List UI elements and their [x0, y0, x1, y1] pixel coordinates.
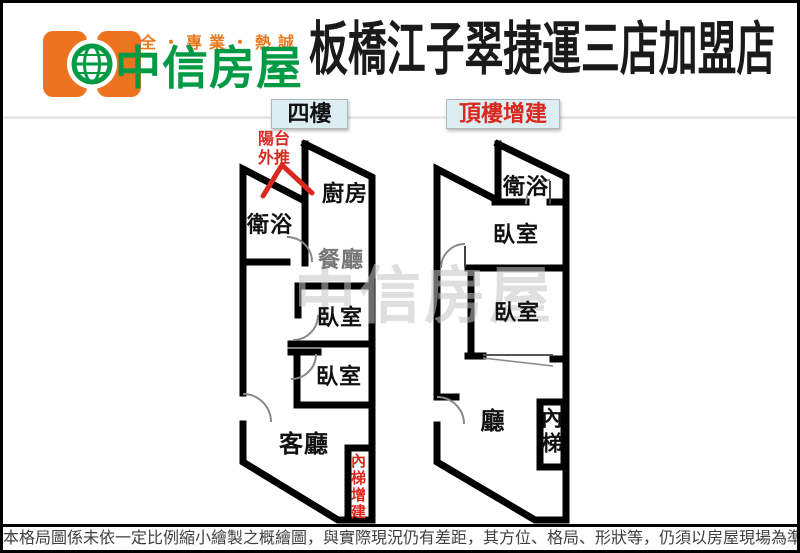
room-label-bedroom2-roof: 臥室 — [494, 302, 540, 324]
stairs-addition-note: 內梯增建 — [350, 453, 365, 521]
room-label-stairs: 內梯 — [540, 407, 561, 457]
room-label-bedroom1-roof: 臥室 — [493, 224, 539, 246]
room-label-hall: 廳 — [481, 410, 506, 434]
room-label-kitchen: 廚房 — [322, 183, 368, 205]
floorplan-drawing — [3, 3, 800, 553]
balcony-pushout-note: 陽台外推 — [255, 130, 293, 168]
room-label-bedroom1-4f: 臥室 — [317, 307, 363, 329]
right-plan-walls — [437, 144, 566, 520]
room-label-bedroom2-4f: 臥室 — [316, 366, 362, 388]
floorplan-flyer: 安全・專業・熱誠 中信房屋 板橋江子翠捷運三店加盟店 — [0, 0, 800, 553]
room-label-bath-4f: 衛浴 — [247, 214, 293, 236]
room-label-living: 客廳 — [279, 433, 329, 457]
room-label-bath-roof: 衛浴 — [503, 176, 549, 198]
room-label-dining: 餐廳 — [318, 249, 364, 271]
